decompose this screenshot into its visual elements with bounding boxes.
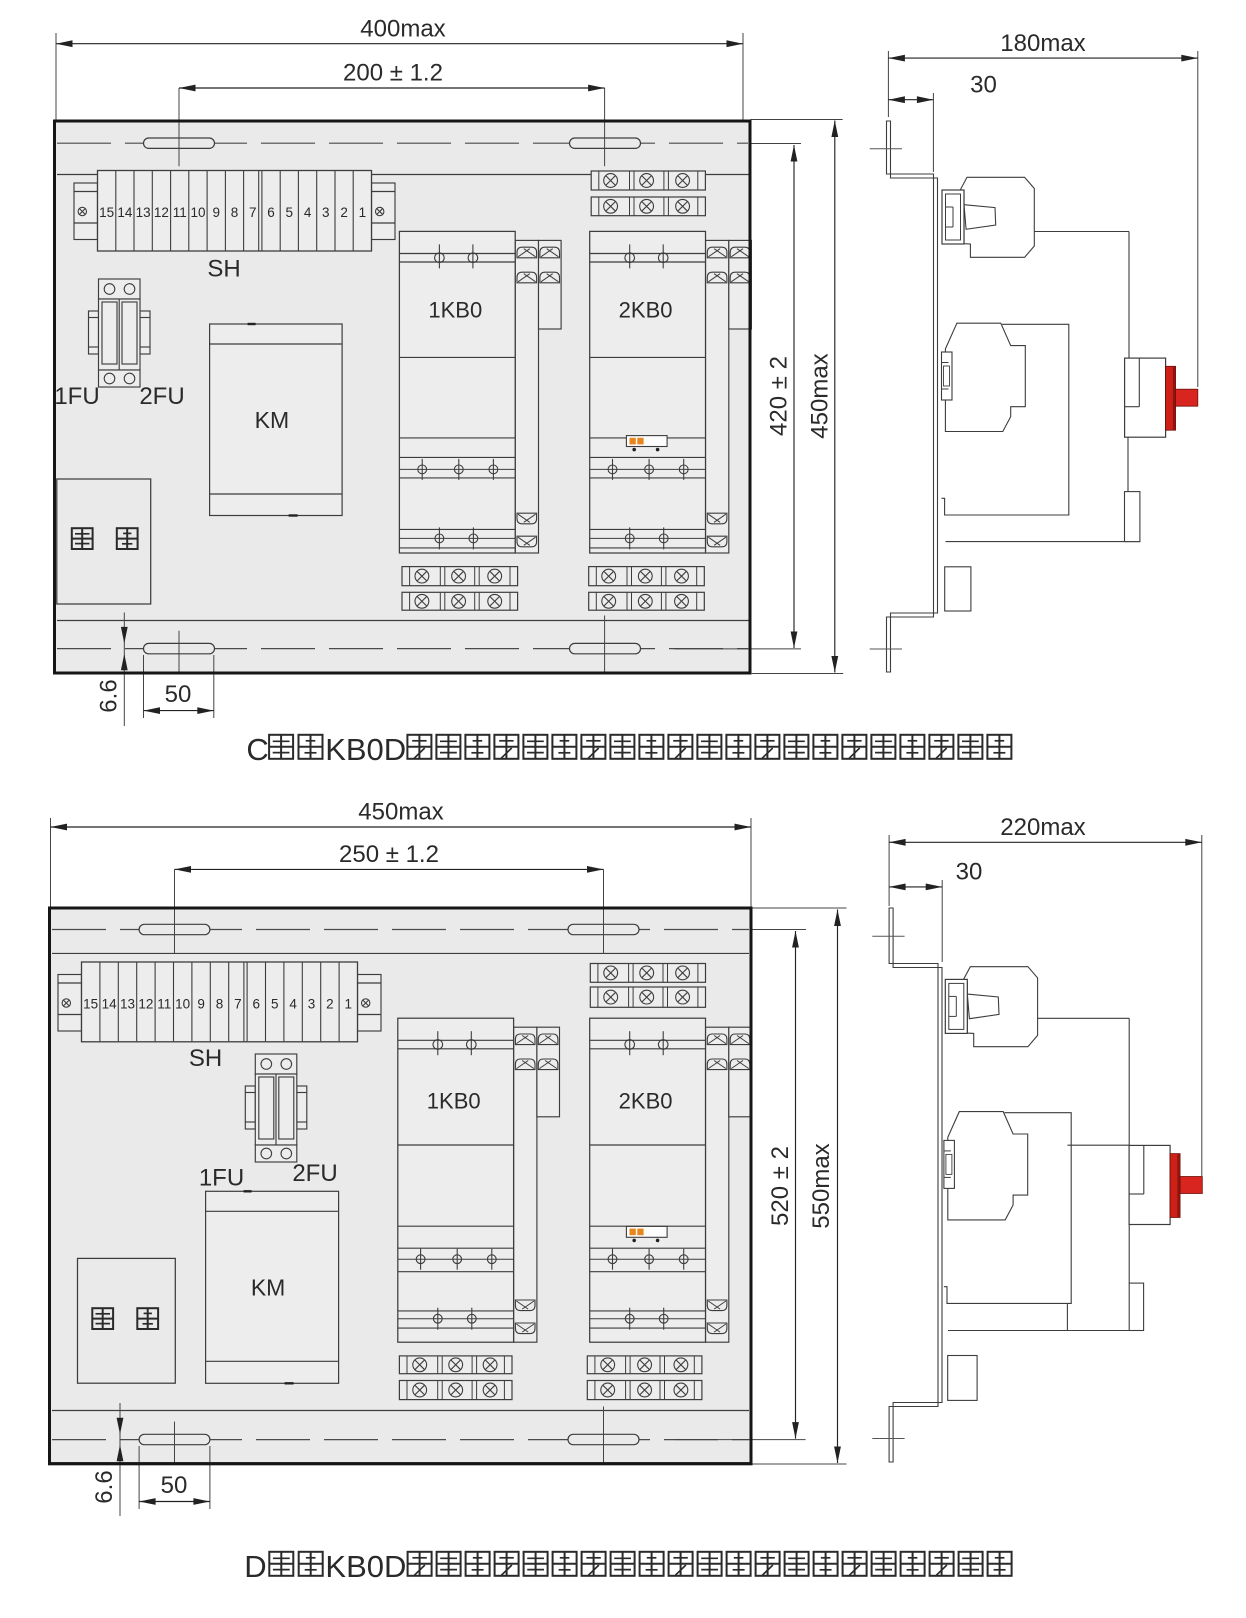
svg-text:C: C bbox=[246, 732, 268, 767]
svg-text:4: 4 bbox=[289, 997, 297, 1012]
svg-text:1FU: 1FU bbox=[199, 1165, 244, 1192]
svg-text:13: 13 bbox=[136, 205, 151, 220]
svg-text:10: 10 bbox=[175, 997, 190, 1012]
svg-text:400max: 400max bbox=[360, 16, 445, 43]
svg-text:180max: 180max bbox=[1000, 30, 1085, 57]
svg-text:D: D bbox=[244, 1549, 266, 1584]
svg-text:6: 6 bbox=[253, 997, 261, 1012]
svg-text:KB0D: KB0D bbox=[325, 1549, 406, 1584]
svg-text:6.6: 6.6 bbox=[91, 1470, 118, 1503]
svg-text:1KB0: 1KB0 bbox=[427, 1089, 481, 1114]
svg-text:14: 14 bbox=[117, 205, 133, 220]
svg-text:SH: SH bbox=[207, 256, 240, 283]
svg-text:11: 11 bbox=[157, 997, 171, 1012]
svg-text:10: 10 bbox=[190, 205, 205, 220]
svg-text:2: 2 bbox=[326, 997, 334, 1012]
svg-text:12: 12 bbox=[154, 205, 169, 220]
svg-text:14: 14 bbox=[102, 997, 118, 1012]
svg-text:KM: KM bbox=[251, 1274, 286, 1300]
svg-text:KM: KM bbox=[255, 407, 290, 433]
svg-text:13: 13 bbox=[120, 997, 135, 1012]
svg-text:11: 11 bbox=[173, 205, 187, 220]
svg-text:8: 8 bbox=[231, 205, 239, 220]
svg-text:1: 1 bbox=[359, 205, 367, 220]
svg-text:12: 12 bbox=[138, 997, 153, 1012]
svg-text:250 ± 1.2: 250 ± 1.2 bbox=[339, 841, 439, 868]
svg-text:420 ± 2: 420 ± 2 bbox=[766, 356, 793, 436]
svg-text:2KB0: 2KB0 bbox=[619, 1089, 673, 1114]
svg-text:30: 30 bbox=[970, 72, 997, 99]
svg-text:200 ± 1.2: 200 ± 1.2 bbox=[343, 60, 443, 87]
svg-text:7: 7 bbox=[234, 997, 242, 1012]
svg-text:50: 50 bbox=[161, 1472, 188, 1499]
svg-text:450max: 450max bbox=[358, 799, 443, 826]
svg-text:1: 1 bbox=[345, 997, 353, 1012]
svg-text:9: 9 bbox=[197, 997, 205, 1012]
svg-text:30: 30 bbox=[956, 859, 983, 886]
svg-text:2FU: 2FU bbox=[139, 383, 184, 410]
svg-text:520 ± 2: 520 ± 2 bbox=[767, 1146, 794, 1226]
svg-text:50: 50 bbox=[165, 681, 192, 708]
svg-text:15: 15 bbox=[99, 205, 114, 220]
svg-text:4: 4 bbox=[304, 205, 312, 220]
svg-text:3: 3 bbox=[308, 997, 316, 1012]
svg-text:2: 2 bbox=[340, 205, 348, 220]
svg-text:8: 8 bbox=[216, 997, 224, 1012]
svg-text:2KB0: 2KB0 bbox=[619, 297, 673, 322]
svg-text:450max: 450max bbox=[807, 353, 834, 438]
svg-text:5: 5 bbox=[286, 205, 294, 220]
svg-text:5: 5 bbox=[271, 997, 279, 1012]
svg-text:1KB0: 1KB0 bbox=[428, 297, 482, 322]
svg-text:550max: 550max bbox=[808, 1143, 835, 1228]
svg-text:6: 6 bbox=[267, 205, 275, 220]
svg-text:220max: 220max bbox=[1000, 814, 1085, 841]
svg-text:2FU: 2FU bbox=[292, 1160, 337, 1187]
svg-text:3: 3 bbox=[322, 205, 330, 220]
svg-text:9: 9 bbox=[212, 205, 220, 220]
svg-text:7: 7 bbox=[249, 205, 257, 220]
svg-text:KB0D: KB0D bbox=[325, 732, 406, 767]
svg-text:1FU: 1FU bbox=[54, 383, 99, 410]
svg-text:6.6: 6.6 bbox=[96, 679, 123, 712]
svg-text:15: 15 bbox=[83, 997, 98, 1012]
svg-text:SH: SH bbox=[189, 1045, 222, 1072]
